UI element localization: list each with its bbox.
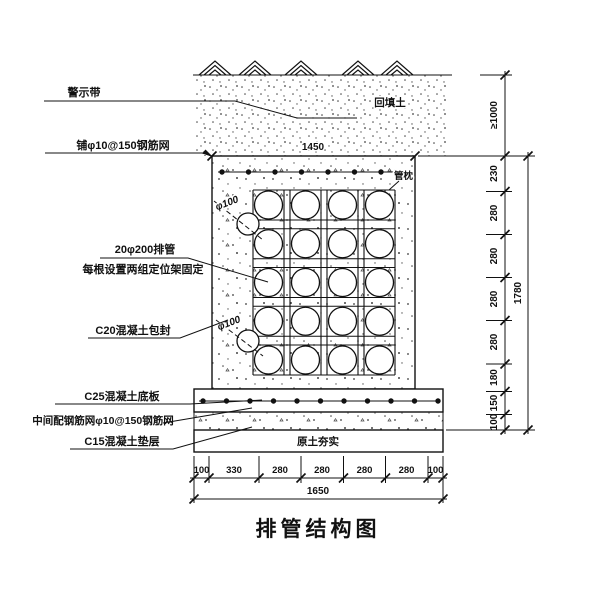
pipe-section: [366, 307, 394, 335]
leader-top-mesh: [45, 153, 210, 156]
dim-right-seg: 280: [489, 290, 500, 307]
subgrade-label: 原土夯实: [297, 435, 339, 448]
dim-right-seg: 150: [489, 394, 500, 411]
dim-bottom-seg: 280: [272, 465, 288, 476]
pipe-section: [366, 346, 394, 374]
dim-right-seg: 230: [489, 165, 500, 182]
pipe-section: [329, 269, 357, 297]
dim-bottom-seg: 330: [226, 465, 242, 476]
dim-bottom-seg: 100: [194, 465, 210, 476]
pipe-section: [292, 191, 320, 219]
pipe-section: [329, 307, 357, 335]
pipe-section: [366, 269, 394, 297]
label-c25-slab: C25混凝土底板: [84, 389, 160, 403]
label-pipe-bank: 20φ200排管: [115, 242, 175, 256]
dim-right-seg: 280: [489, 204, 500, 221]
pipe-cradle-label: 管枕: [394, 170, 414, 182]
dim-right-seg: 280: [489, 333, 500, 350]
pipe-section: [255, 346, 283, 374]
label-top-mesh: 铺φ10@150钢筋网: [76, 138, 169, 152]
pipe-duct-structure-drawing: 回填土 管枕 φ100 φ100 原土夯实 警示带 铺φ10@150钢筋网 20…: [0, 0, 600, 600]
dim-right-seg: 100: [489, 413, 500, 430]
pipe-section: [329, 230, 357, 258]
duct-circle-lower: [237, 330, 259, 352]
label-warning-tape: 警示带: [67, 85, 101, 99]
pipe-section: [255, 307, 283, 335]
dim-cover-depth: ≥1000: [489, 101, 500, 129]
drawing-sheet: 回填土 管枕 φ100 φ100 原土夯实 警示带 铺φ10@150钢筋网 20…: [0, 0, 600, 600]
dim-bottom-seg: 280: [314, 465, 330, 476]
backfill-label: 回填土: [374, 96, 406, 109]
pipe-section: [255, 269, 283, 297]
dim-bottom-seg: 280: [357, 465, 373, 476]
ground-hatching: [199, 61, 413, 75]
label-c20-encasement: C20混凝土包封: [95, 323, 170, 337]
pipe-section: [292, 230, 320, 258]
drawing-title: 排管结构图: [256, 517, 381, 541]
label-c15-cushion: C15混凝土垫层: [84, 434, 159, 448]
label-spacer-frames: 每根设置两组定位架固定: [83, 262, 204, 276]
bottom-dimension-chain: 100 330 280 280 280 280 100 1650: [190, 456, 447, 503]
pipe-section: [366, 191, 394, 219]
pipe-section: [292, 269, 320, 297]
pipe-section: [292, 307, 320, 335]
dim-bottom-seg: 280: [399, 465, 415, 476]
dim-bottom-seg: 100: [428, 465, 444, 476]
pipe-section: [329, 191, 357, 219]
duct-circle-upper: [237, 213, 259, 235]
pipe-section: [255, 230, 283, 258]
label-slab-mesh: 中间配钢筋网φ10@150钢筋网: [32, 414, 173, 427]
pipe-section: [292, 346, 320, 374]
dim-right-overall: 1780: [513, 281, 524, 304]
cushion-layer: [194, 412, 443, 430]
pipe-section: [255, 191, 283, 219]
pipe-section: [329, 346, 357, 374]
dim-top-width: 1450: [302, 142, 325, 153]
dim-right-seg: 280: [489, 247, 500, 264]
dim-bottom-overall: 1650: [307, 486, 330, 497]
pipe-section: [366, 230, 394, 258]
dim-right-seg: 180: [489, 369, 500, 386]
